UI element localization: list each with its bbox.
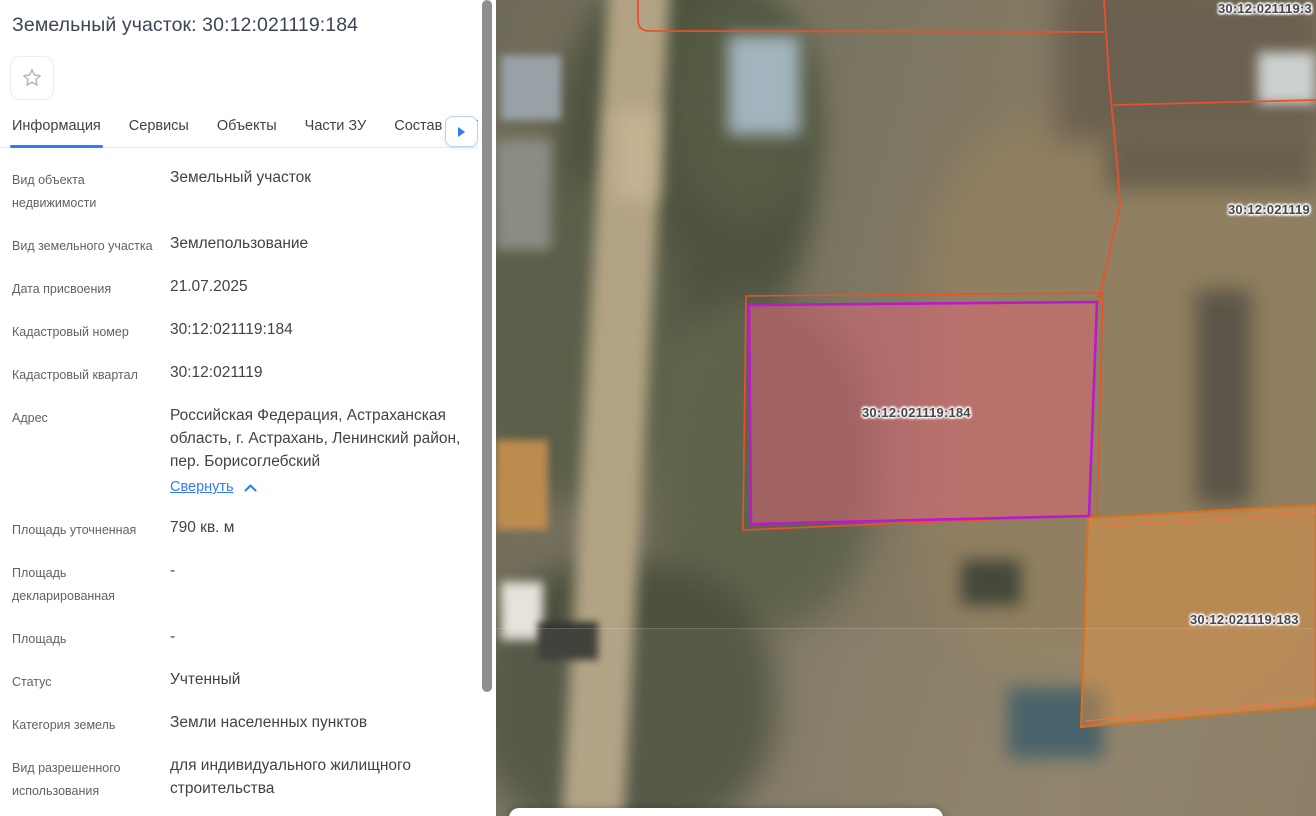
field-label: Кадастровый квартал (12, 361, 158, 387)
field-label: Статус (12, 668, 158, 694)
quarter-boundary-line (1113, 100, 1316, 105)
field-label: Площадь (12, 625, 158, 651)
field-label: Дата присвоения (12, 275, 158, 301)
field-value: Земли населенных пунктов (170, 711, 462, 737)
page-title: Земельный участок: 30:12:021119:184 (12, 14, 472, 37)
field-row: Вид земельного участкаЗемлепользование (12, 232, 478, 258)
field-row: Дата присвоения21.07.2025 (12, 275, 478, 301)
app-window: Земельный участок: 30:12:021119:184 Инфо… (0, 0, 1316, 816)
address-collapse-link[interactable]: Свернуть (170, 476, 234, 499)
star-icon (21, 67, 43, 89)
field-label: Категория земель (12, 711, 158, 737)
field-value: - (170, 559, 462, 608)
parcel-184-polygon[interactable] (749, 302, 1097, 524)
field-value: 790 кв. м (170, 516, 462, 542)
cadastral-overlay (496, 0, 1316, 816)
field-label: Площадь декларированная (12, 559, 158, 608)
tab-chasti-zu[interactable]: Части ЗУ (305, 118, 367, 147)
parcel-attributes: Вид объекта недвижимостиЗемельный участо… (12, 166, 478, 816)
field-row: СтатусУчтенный (12, 668, 478, 694)
tab-obekty[interactable]: Объекты (217, 118, 277, 147)
field-value: Российская Федерация, Астраханская облас… (170, 404, 462, 499)
tab-servisy[interactable]: Сервисы (129, 118, 189, 147)
field-row: Площадь- (12, 625, 478, 651)
chevron-right-icon (458, 127, 465, 137)
favorite-button[interactable] (10, 56, 54, 100)
field-label: Площадь уточненная (12, 516, 158, 542)
field-label: Вид разрешенного использования (12, 754, 158, 803)
map-bottom-bar[interactable] (509, 808, 943, 816)
field-row: Категория земельЗемли населенных пунктов (12, 711, 478, 737)
field-row: Площадь уточненная790 кв. м (12, 516, 478, 542)
tabs-scroll-right-button[interactable] (445, 116, 478, 147)
field-row: Вид разрешенного использованиядля индиви… (12, 754, 478, 803)
field-value: 21.07.2025 (170, 275, 462, 301)
panel-scrollbar-thumb[interactable] (482, 0, 492, 692)
panel-scrollbar (478, 0, 496, 816)
field-label: Вид земельного участка (12, 232, 158, 258)
field-row: Вид объекта недвижимостиЗемельный участо… (12, 166, 478, 215)
field-row: Кадастровый квартал30:12:021119 (12, 361, 478, 387)
field-label: Кадастровый номер (12, 318, 158, 344)
field-row: Площадь декларированная- (12, 559, 478, 608)
tab-bar: ИнформацияСервисыОбъектыЧасти ЗУСоставГ (0, 112, 482, 148)
quarter-boundary-line (1098, 0, 1120, 303)
field-value: 30:12:021119 (170, 361, 462, 387)
field-row: Кадастровый номер30:12:021119:184 (12, 318, 478, 344)
field-label: Адрес (12, 404, 158, 499)
tab-sostav[interactable]: Состав (394, 118, 442, 147)
chevron-up-icon (244, 476, 257, 499)
field-value: - (170, 625, 462, 651)
field-label: Вид объекта недвижимости (12, 166, 158, 215)
quarter-boundary-line (638, 0, 1104, 32)
field-value: для индивидуального жилищного строительс… (170, 754, 462, 803)
field-value: Учтенный (170, 668, 462, 694)
map-canvas[interactable]: 30:12:021119:330:12:02111930:12:021119:1… (496, 0, 1316, 816)
field-row: АдресРоссийская Федерация, Астраханская … (12, 404, 478, 499)
tab-informacia[interactable]: Информация (12, 118, 101, 147)
field-value: Земельный участок (170, 166, 462, 215)
parcel-183-polygon[interactable] (1081, 505, 1316, 727)
field-value: 30:12:021119:184 (170, 318, 462, 344)
field-value: Землепользование (170, 232, 462, 258)
address-collapse-row: Свернуть (170, 476, 462, 499)
info-panel: Земельный участок: 30:12:021119:184 Инфо… (0, 0, 496, 816)
